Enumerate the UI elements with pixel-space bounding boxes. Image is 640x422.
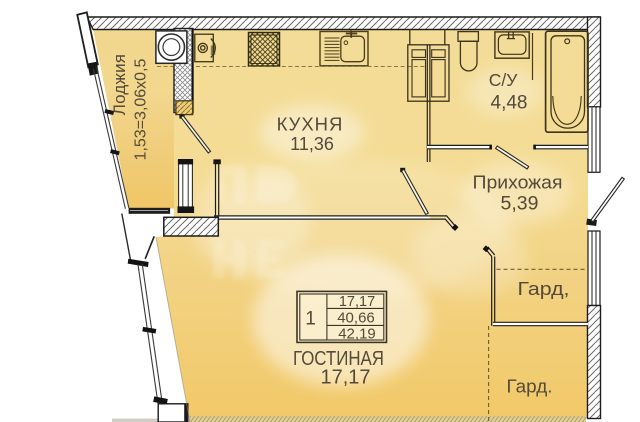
svg-text:17,17: 17,17: [339, 294, 375, 310]
svg-text:5,39: 5,39: [501, 193, 539, 215]
svg-text:С/У: С/У: [489, 70, 519, 90]
svg-text:17,17: 17,17: [320, 367, 370, 389]
svg-text:Лоджия: Лоджия: [110, 54, 129, 115]
svg-text:Гард.: Гард.: [507, 376, 553, 397]
svg-text:40,66: 40,66: [337, 309, 375, 326]
svg-text:1: 1: [305, 309, 316, 330]
svg-text:Прихожая: Прихожая: [473, 172, 563, 193]
svg-text:42,19: 42,19: [338, 326, 376, 343]
svg-text:4,48: 4,48: [491, 93, 528, 114]
svg-text:Гард,: Гард,: [518, 278, 570, 299]
svg-text:11,36: 11,36: [290, 134, 334, 154]
svg-text:1,53=3,06х0,5: 1,53=3,06х0,5: [133, 58, 150, 160]
svg-text:КУХНЯ: КУХНЯ: [277, 114, 344, 135]
